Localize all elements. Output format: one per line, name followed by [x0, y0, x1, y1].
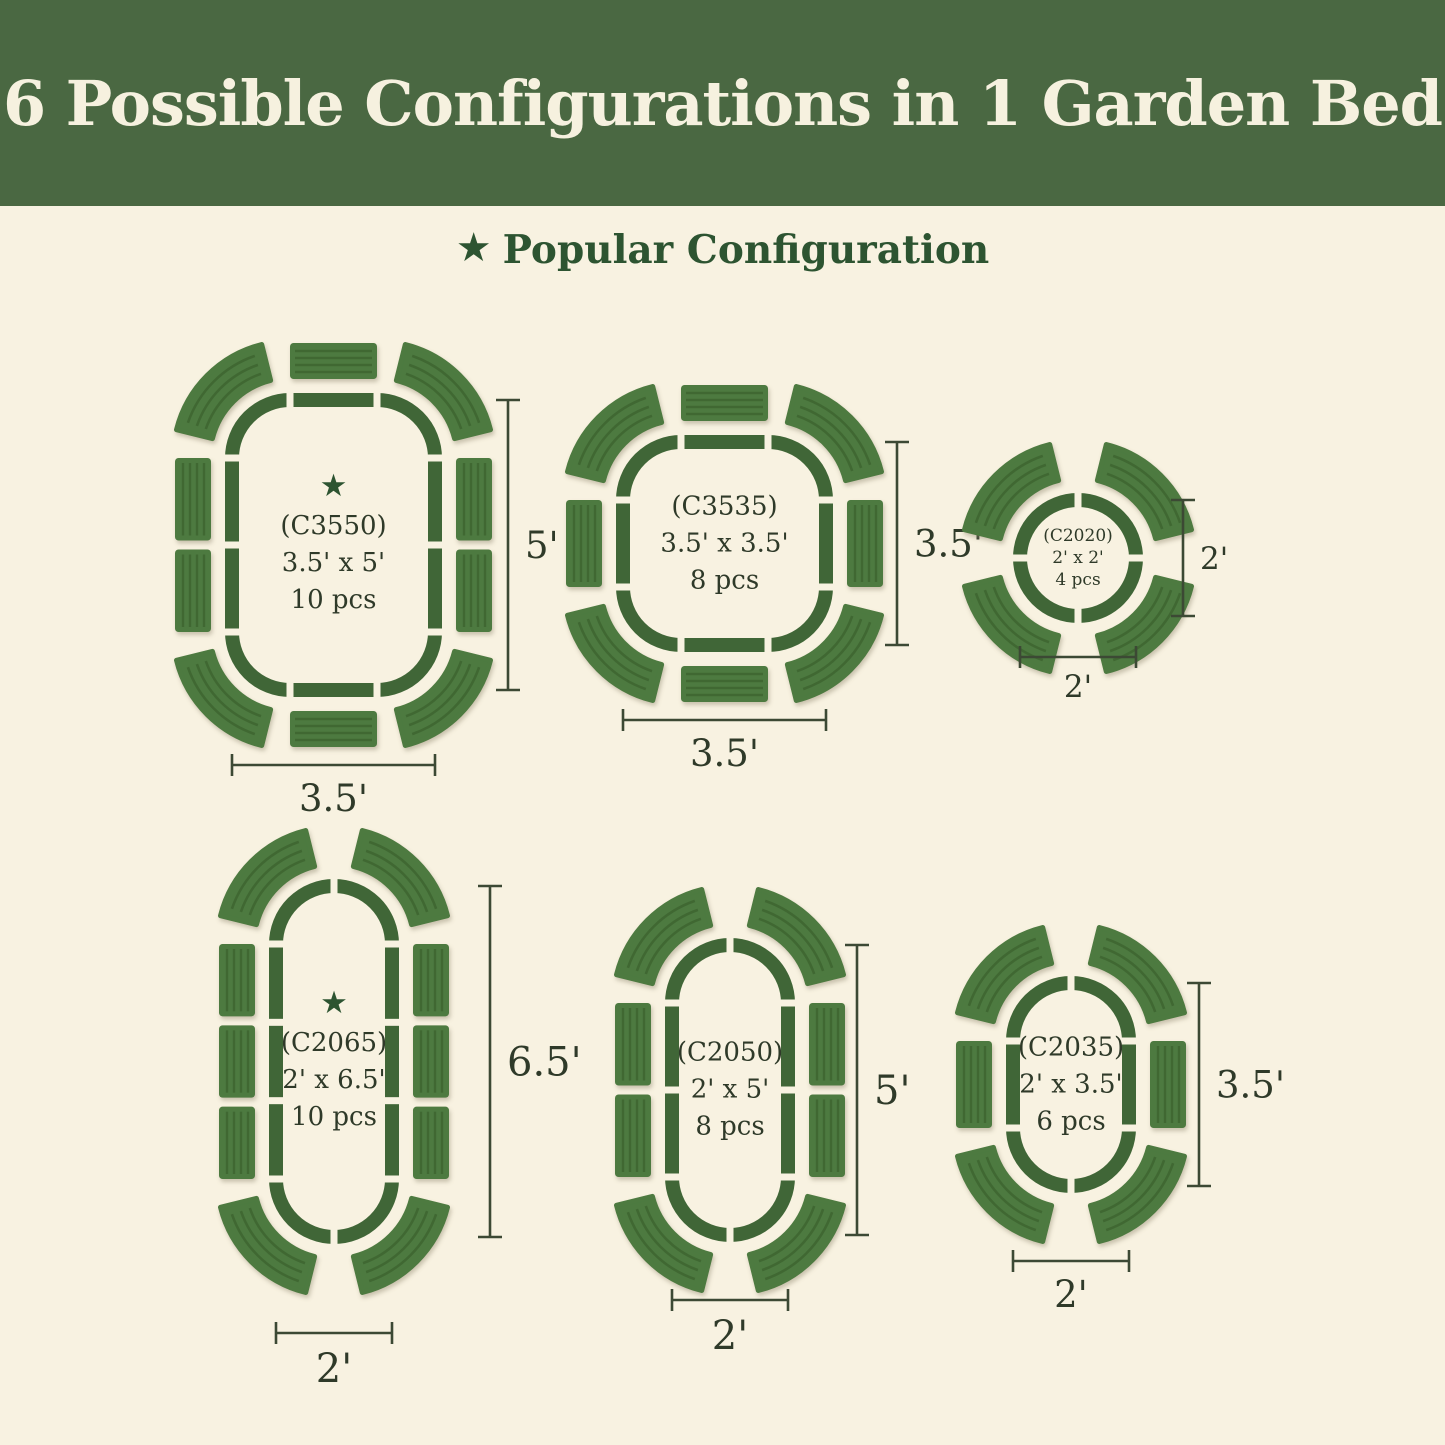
svg-text:2': 2': [316, 1346, 352, 1391]
config-code: (C2065): [281, 1025, 387, 1062]
banner: 6 Possible Configurations in 1 Garden Be…: [0, 0, 1445, 206]
config-pieces: 8 pcs: [677, 1109, 783, 1146]
config-label-c2020: ★ (C2020) 2' x 2' 4 pcs: [1043, 525, 1113, 591]
star-icon: ★: [456, 228, 492, 268]
svg-text:2': 2': [1054, 1273, 1088, 1316]
config-size: 3.5' x 3.5': [660, 525, 788, 562]
config-size: 2' x 5': [677, 1072, 783, 1109]
config-pieces: 8 pcs: [660, 562, 788, 599]
config-label-c3535: ★ (C3535) 3.5' x 3.5' 8 pcs: [660, 488, 788, 599]
svg-text:2': 2': [1064, 669, 1092, 705]
config-pieces: 4 pcs: [1043, 569, 1113, 591]
config-size: 2' x 6.5': [281, 1062, 387, 1099]
config-size: 2' x 2': [1043, 547, 1113, 569]
config-label-c2035: ★ (C2035) 2' x 3.5' 6 pcs: [1018, 1029, 1124, 1140]
c2065-drawing: 6.5'2': [196, 806, 606, 1391]
config-label-c3550: ★ (C3550) 3.5' x 5' 10 pcs: [280, 471, 386, 619]
config-label-c2050: ★ (C2050) 2' x 5' 8 pcs: [677, 1035, 783, 1146]
config-code: (C3550): [280, 508, 386, 545]
svg-text:3.5': 3.5': [1216, 1063, 1285, 1106]
config-pieces: 10 pcs: [280, 582, 386, 619]
svg-text:2': 2': [1200, 541, 1228, 577]
config-code: (C2020): [1043, 525, 1113, 547]
config-size: 3.5' x 5': [280, 545, 386, 582]
config-pieces: 10 pcs: [281, 1099, 387, 1136]
popular-configuration-legend: ★ Popular Configuration: [0, 224, 1445, 276]
config-code: (C2035): [1018, 1029, 1124, 1066]
config-size: 2' x 3.5': [1018, 1066, 1124, 1103]
star-icon: ★: [280, 471, 386, 501]
garden-bed-infographic: 6 Possible Configurations in 1 Garden Be…: [0, 0, 1445, 1445]
svg-text:6.5': 6.5': [507, 1040, 582, 1086]
svg-text:2': 2': [712, 1313, 748, 1359]
config-code: (C2050): [677, 1035, 783, 1072]
config-diagram-c2065: 6.5'2': [196, 806, 606, 1391]
page-title: 6 Possible Configurations in 1 Garden Be…: [3, 67, 1442, 140]
svg-text:3.5': 3.5': [690, 732, 759, 775]
config-code: (C3535): [660, 488, 788, 525]
config-pieces: 6 pcs: [1018, 1103, 1124, 1140]
config-label-c2065: ★ (C2065) 2' x 6.5' 10 pcs: [281, 988, 387, 1136]
star-icon: ★: [281, 988, 387, 1018]
svg-text:5': 5': [874, 1068, 910, 1114]
legend-label: Popular Configuration: [503, 227, 990, 273]
